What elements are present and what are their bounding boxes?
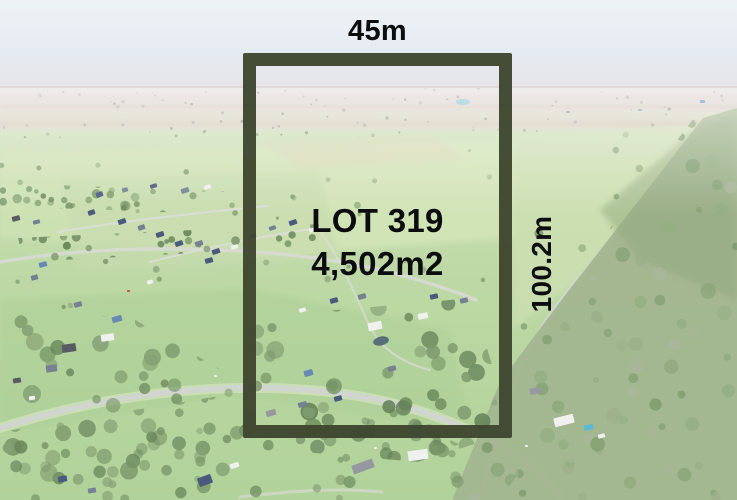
frontage-measurement-label: 45m [243,17,512,46]
listing-aerial-image: 45m 100.2m LOT 319 4,502m2 [0,0,737,500]
lot-area-label: 4,502m2 [243,242,512,285]
lot-caption: LOT 319 4,502m2 [243,199,512,285]
depth-measurement-label: 100.2m [528,184,558,344]
lot-number-label: LOT 319 [243,199,512,242]
